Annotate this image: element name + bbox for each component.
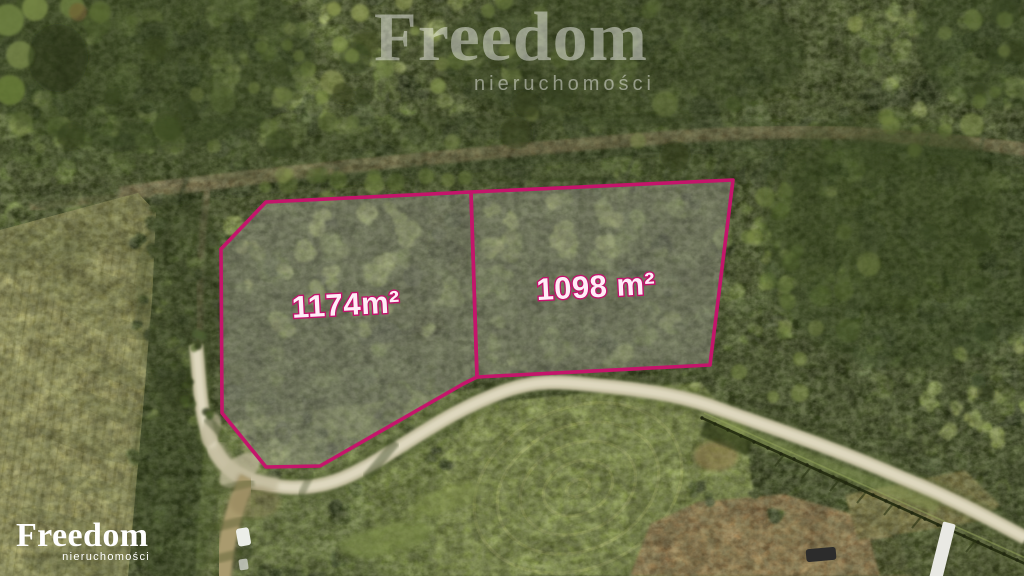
svg-text:nieruchomości: nieruchomości <box>62 551 150 563</box>
svg-text:1174m²: 1174m² <box>291 284 401 325</box>
svg-text:Freedom: Freedom <box>16 517 148 554</box>
svg-text:1098 m²: 1098 m² <box>536 266 657 307</box>
svg-text:Freedom: Freedom <box>374 0 648 76</box>
svg-text:nieruchomości: nieruchomości <box>474 73 655 95</box>
